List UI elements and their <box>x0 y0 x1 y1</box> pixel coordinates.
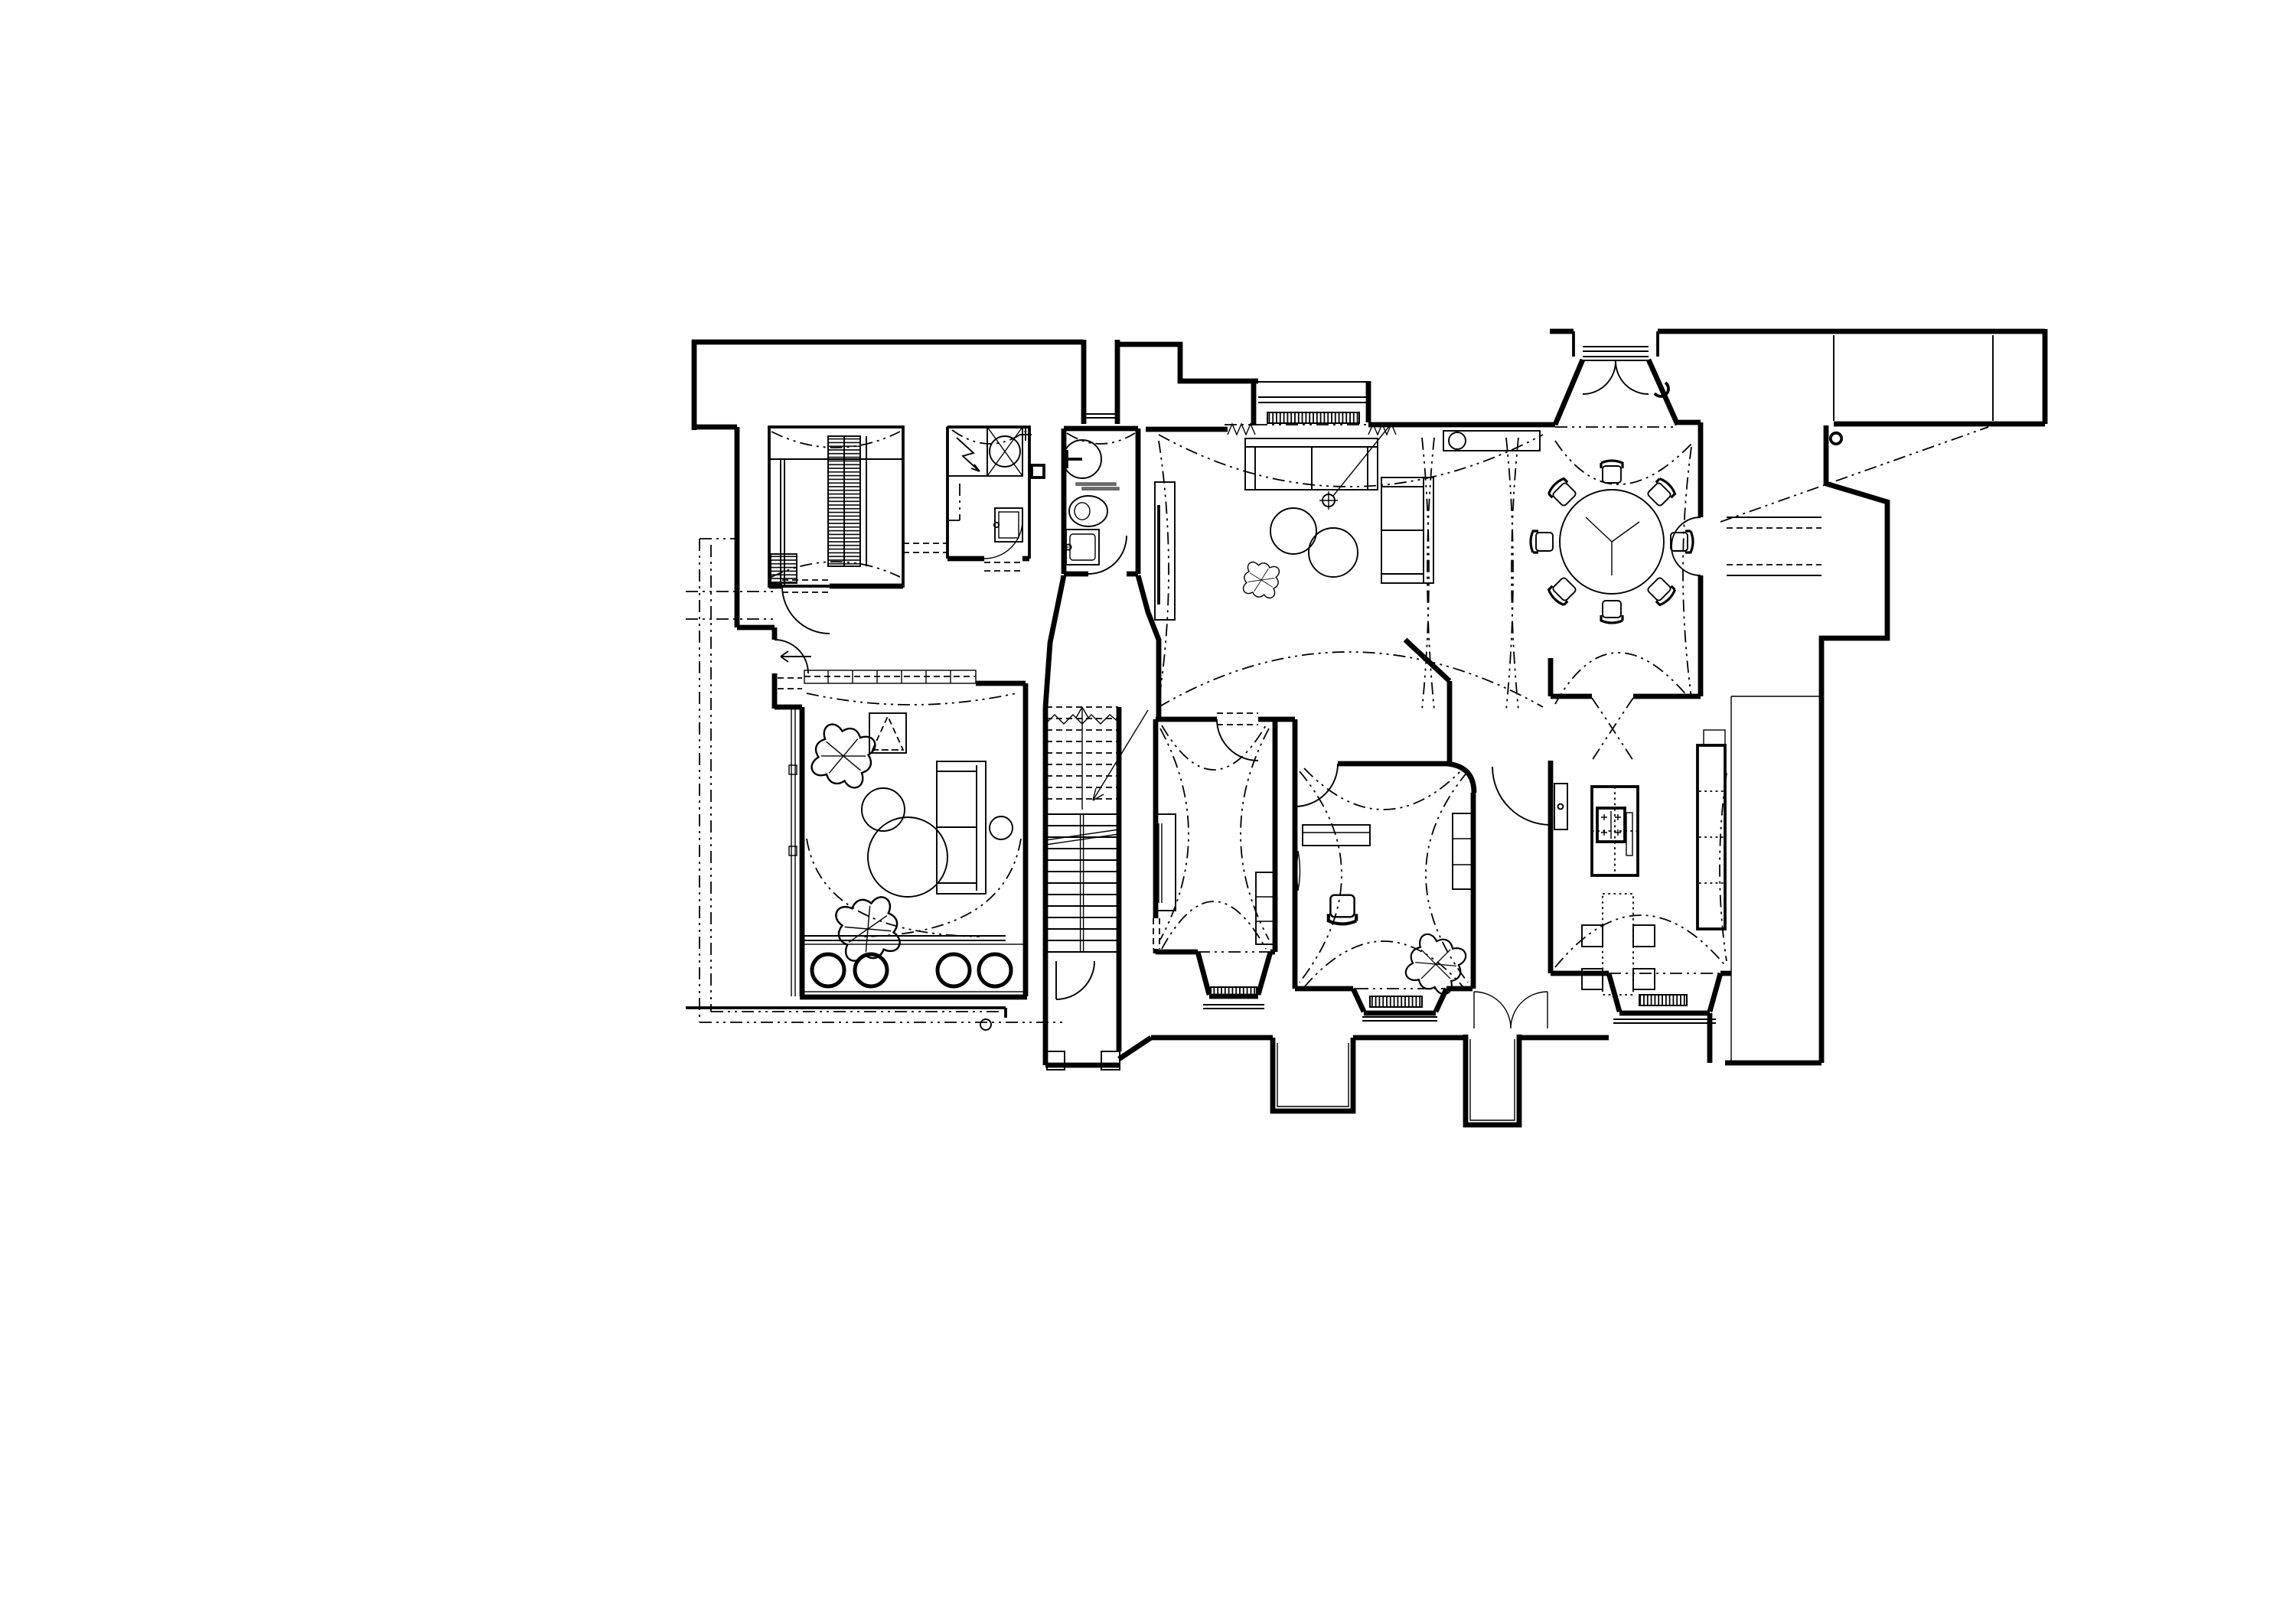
radiator-kitchen-bay <box>1639 995 1687 1005</box>
round-table-small <box>862 788 905 831</box>
vault-study <box>1295 768 1473 989</box>
door-arc-utility <box>984 520 1022 559</box>
glass-shelf <box>1082 487 1119 490</box>
door-arc-kitchen-french <box>1474 992 1548 1028</box>
pouf-living <box>1241 559 1281 600</box>
drain-circle <box>980 1019 991 1030</box>
dining-chair <box>1601 601 1623 623</box>
door-arc-bathroom <box>1088 536 1127 574</box>
radiator-study-bay <box>1370 996 1422 1007</box>
wall-openings <box>778 528 1821 949</box>
wall-chimney <box>1084 340 1117 424</box>
coffee-table-small <box>1309 528 1358 577</box>
kitchen-table <box>1603 894 1633 995</box>
dining-chair <box>1531 531 1553 552</box>
door-arc-side-exit <box>775 640 811 673</box>
door-arc-stair-bottom <box>1056 961 1094 999</box>
arch-passage <box>1671 517 1821 575</box>
service-shaft <box>1032 465 1044 477</box>
study-furniture <box>1297 813 1473 999</box>
bathroom-fixtures <box>1063 440 1119 565</box>
wing-inner-faces <box>1834 335 1993 421</box>
opening-hall-stairs <box>1153 918 1159 949</box>
terrace-step <box>802 936 1006 940</box>
dining-chair <box>1547 575 1577 606</box>
living-furniture <box>1155 425 1540 620</box>
opening-utility-door <box>984 562 1022 571</box>
hall-cabinet <box>1256 872 1274 944</box>
terrace-dash-outer <box>700 539 1064 1022</box>
wall-study-hall <box>1156 719 1474 989</box>
deepbay-inner <box>1277 1039 1515 1120</box>
study-cabinet <box>1453 813 1473 889</box>
dining-chair <box>1601 461 1623 483</box>
terrace-boundary <box>686 539 1064 1022</box>
door-arc-hall-top <box>1217 719 1258 761</box>
kitchen-bay-sill <box>1613 1019 1716 1023</box>
washbasin-inner <box>1070 534 1095 560</box>
wardrobe-door-lens <box>1297 851 1300 891</box>
family-furniture <box>802 670 1026 992</box>
vault-wing-diagonal <box>1720 427 1988 522</box>
fence-line <box>791 707 795 996</box>
dining-furniture <box>1531 461 1693 623</box>
vault-hall <box>1160 725 1270 952</box>
wall-left-side <box>694 427 1029 997</box>
vault-living <box>1159 435 1543 710</box>
hall-furniture <box>1155 814 1274 944</box>
planter-pot <box>855 954 887 986</box>
sofa-side-lines <box>1381 477 1424 583</box>
porch-walls <box>1574 331 1658 357</box>
study-cabinet-shelves <box>1453 839 1473 865</box>
wall-bays-bottom <box>1119 952 1720 1125</box>
chimney-flue-lines <box>1084 414 1117 418</box>
vault-kitchen <box>1555 773 1727 967</box>
dryer-x-icon <box>987 427 1022 476</box>
round-table-large <box>868 817 947 897</box>
terrace-edge <box>686 1008 1006 1018</box>
washer-lightning-icon <box>957 438 980 471</box>
stool <box>1633 969 1655 989</box>
closet-furniture <box>769 436 903 586</box>
opening-hall-door <box>1217 713 1258 725</box>
walls-structural <box>692 329 2045 1125</box>
sideboard-dining <box>1443 431 1540 451</box>
vault-family <box>807 693 1021 937</box>
desk <box>1303 825 1370 846</box>
planter-band <box>802 944 1026 992</box>
entrance-door-leaf <box>1583 347 1649 360</box>
cabinet-row-dashed <box>804 670 976 683</box>
planter-pot <box>938 954 970 986</box>
door-arc-closet <box>782 586 830 634</box>
table-tripod-lines <box>1586 517 1639 575</box>
radiator-hall-bay <box>1211 987 1257 998</box>
opening-arch-passage <box>1727 528 1821 565</box>
hall-bay-sill <box>1203 1005 1264 1009</box>
study-bay-sill <box>1362 1017 1437 1021</box>
kitchen-furniture <box>1554 730 1725 995</box>
dining-chair <box>1645 477 1676 507</box>
staircase <box>1045 707 1148 952</box>
door-swings <box>775 361 1649 1028</box>
vault-dining <box>1555 427 1691 704</box>
play-tent-triangle <box>872 716 903 750</box>
island-dotted <box>1592 787 1638 875</box>
floor-plan-svg <box>0 0 2296 1623</box>
door-arc-corridor <box>1492 767 1551 825</box>
wall-cabinet <box>1554 784 1567 829</box>
lamp-circle-icon <box>1449 432 1466 449</box>
walls-partition <box>769 331 1841 1070</box>
washer <box>947 427 987 476</box>
stool <box>1582 925 1603 947</box>
shower-arm <box>1064 450 1082 468</box>
furniture <box>769 425 1725 999</box>
shelf-stack-hatched <box>771 554 797 583</box>
vault-projections <box>771 425 1988 989</box>
column-icon <box>1831 433 1841 444</box>
opening-closet-utility <box>903 543 947 552</box>
dining-chair <box>1547 477 1577 507</box>
hall-cabinet-shelves <box>1256 897 1274 921</box>
living-window-glass <box>1258 382 1368 402</box>
oven-handle <box>1626 813 1632 855</box>
sofa-window-lines <box>1245 447 1378 490</box>
opening-family-hall <box>778 678 802 689</box>
toilet-bowl <box>1075 503 1090 520</box>
drawing-canvas <box>0 0 2296 1623</box>
sofa-family-lines <box>937 765 977 891</box>
stool <box>1633 925 1655 947</box>
wall-unit-lines <box>1159 823 1162 903</box>
door-arc-entrance-right <box>1616 361 1649 394</box>
stair-up-arrow <box>1076 707 1088 810</box>
wall-top-left <box>692 340 1084 430</box>
door-arc-study <box>1295 764 1338 807</box>
shaft-lines <box>1731 696 1821 1062</box>
radiator-living <box>1267 412 1359 423</box>
wall-entrance-vestibule <box>1550 329 2045 425</box>
tall-cabinet-top <box>1704 730 1725 745</box>
utility-sink-basin <box>999 512 1019 538</box>
planter-pot <box>979 954 1011 986</box>
hob-burners-icon <box>1601 811 1621 839</box>
cabinet-knob-icon <box>1558 804 1564 810</box>
terrace-dash-inner <box>711 545 1000 1012</box>
glass-shelf <box>1076 483 1116 485</box>
door-arc-entrance-left <box>1583 361 1616 394</box>
dining-chair <box>1645 575 1676 606</box>
vault-bathroom <box>1067 433 1135 444</box>
side-table-circle <box>990 816 1013 839</box>
wall-bath-funnel <box>1045 429 1159 719</box>
planter-pot <box>812 954 844 986</box>
desk-chair <box>1329 895 1356 924</box>
